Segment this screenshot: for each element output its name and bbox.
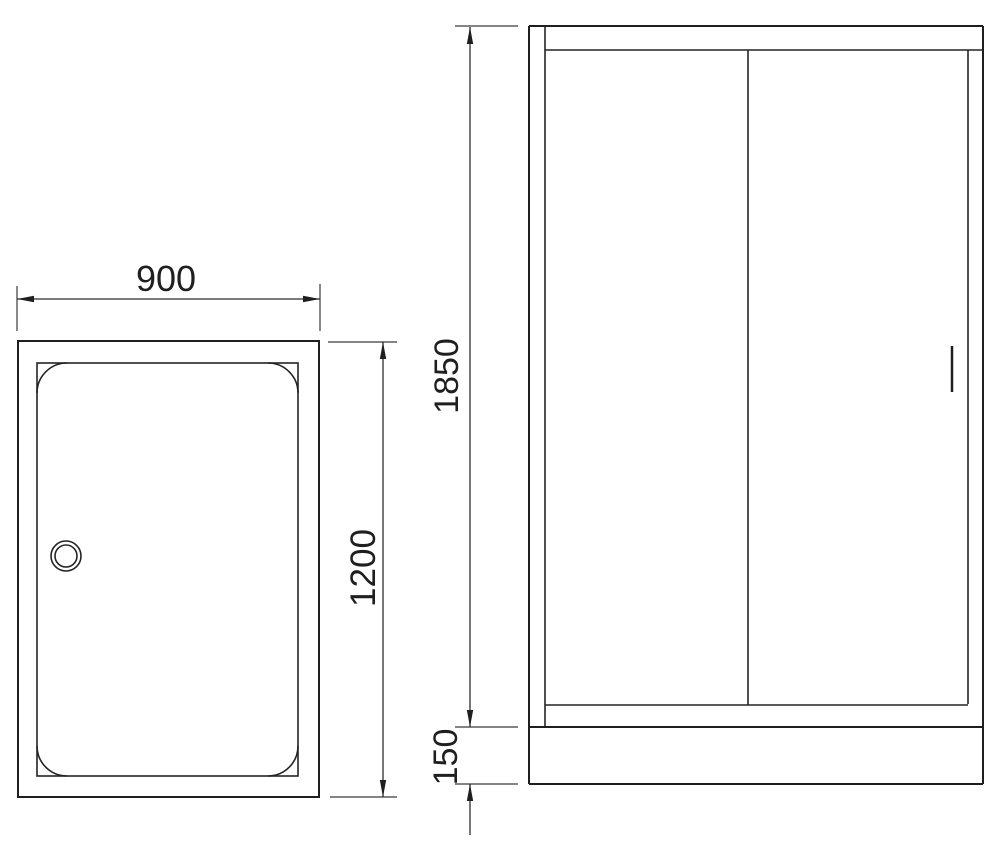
shower-enclosure-dimension-drawing: 900 1200 [0, 0, 999, 842]
dim-900-label: 900 [136, 258, 196, 299]
dim-1200-label: 1200 [344, 529, 383, 607]
plan-corner-arc-top-left [37, 363, 67, 393]
dimension-plan-width: 900 [17, 258, 320, 331]
dim-1850-label: 1850 [428, 338, 466, 414]
dimension-elevation-height: 1850 [428, 26, 518, 727]
technical-drawing-canvas: 900 1200 [0, 0, 999, 842]
elevation-view [529, 26, 983, 784]
plan-corner-arc-bottom-left [37, 746, 67, 776]
dim-150-label: 150 [427, 729, 465, 786]
plan-tray-inner-rect [37, 363, 298, 776]
drain-inner-circle [55, 545, 77, 567]
plan-view [18, 341, 319, 797]
dimension-base-height: 150 [427, 729, 518, 835]
plan-tray-outer-rect [18, 341, 319, 797]
plan-corner-arc-bottom-right [268, 746, 298, 776]
plan-corner-arc-top-right [268, 363, 298, 393]
dimension-plan-depth: 1200 [328, 342, 397, 797]
